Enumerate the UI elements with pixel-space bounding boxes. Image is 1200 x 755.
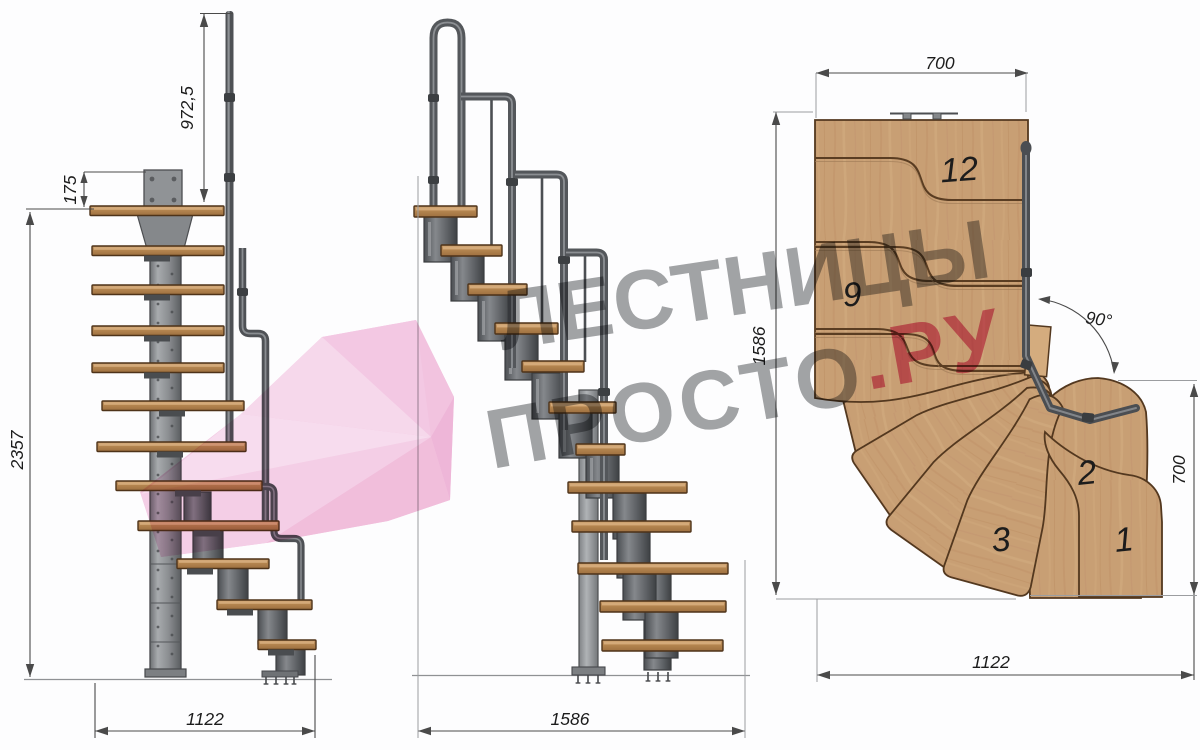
- svg-text:3: 3: [989, 520, 1012, 560]
- svg-text:1122: 1122: [972, 652, 1010, 672]
- svg-text:2: 2: [1074, 453, 1098, 493]
- svg-text:2357: 2357: [7, 429, 27, 470]
- svg-text:175: 175: [60, 175, 80, 204]
- svg-text:1122: 1122: [186, 709, 224, 729]
- svg-text:972,5: 972,5: [177, 86, 197, 130]
- svg-text:1: 1: [1112, 520, 1135, 560]
- svg-text:700: 700: [925, 53, 954, 73]
- svg-text:90°: 90°: [1084, 307, 1113, 330]
- svg-text:700: 700: [1169, 455, 1189, 484]
- svg-text:1586: 1586: [551, 709, 590, 729]
- svg-text:12: 12: [939, 150, 979, 191]
